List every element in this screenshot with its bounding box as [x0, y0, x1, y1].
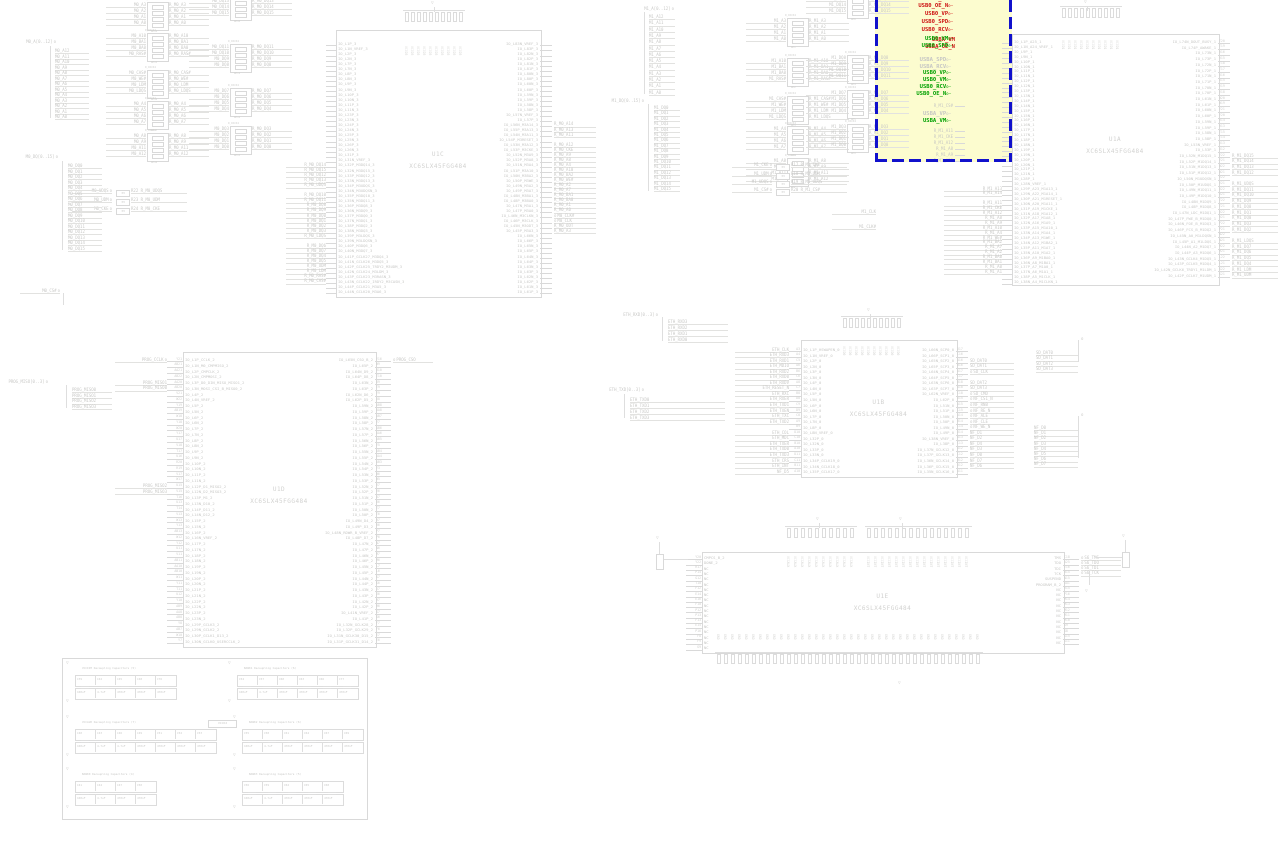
pin-stub: [326, 111, 336, 112]
pin-number: M6: [376, 559, 391, 563]
pack-net-left[interactable]: M0_LDQS: [106, 89, 146, 94]
pin-name: IO_L21N_2: [185, 594, 206, 598]
power-pin: [955, 654, 959, 664]
power-rail: [1060, 6, 1122, 7]
wire: [63, 293, 64, 305]
power-pin: [965, 528, 969, 538]
pin-number: R20: [167, 461, 182, 465]
fan-net-label[interactable]: M1_A4: [649, 65, 675, 70]
pin-stub: [540, 263, 552, 264]
resistor-icon: [152, 104, 164, 109]
net-label[interactable]: SD_CLK: [970, 370, 1014, 375]
cap-group-tag: VCCO2: [208, 720, 237, 728]
pack-net-left[interactable]: M0_DQ0: [189, 145, 229, 150]
cap-cell-sep: [277, 688, 278, 698]
pack-net-left[interactable]: M1_DQ11: [806, 74, 846, 79]
pin-name: IO_L42P_2: [278, 605, 373, 609]
resistor-icon: [152, 136, 164, 141]
pack-net-left[interactable]: M0_DQ15: [189, 11, 229, 16]
pack-net-left[interactable]: M0_A0: [106, 21, 146, 26]
pin-name: IO_L74P_AWAKE_1: [1121, 46, 1216, 50]
pin-number: R19: [167, 467, 182, 471]
resistor-icon: [152, 36, 164, 41]
cap-cell-sep: [95, 675, 96, 685]
cap-plate: [268, 742, 276, 743]
net-label[interactable]: R_M1_DQ2: [1232, 228, 1278, 233]
net-label[interactable]: M0_CS#: [20, 289, 60, 294]
fan-net-label[interactable]: M1_A1: [649, 84, 675, 89]
pin-name: IO_L35N_GCLK16_0: [859, 470, 954, 474]
power-pin-label: GND: [793, 634, 796, 640]
pin-stub: [326, 56, 336, 57]
power-pin-label: VCCINT: [929, 556, 932, 567]
pin-name: IO_L50N_2: [278, 508, 373, 512]
fan-net-label[interactable]: NF_D7: [1034, 462, 1078, 467]
pin-name: IO_L53P_2: [278, 479, 373, 483]
pin-name: IO_L20N_2: [185, 582, 206, 586]
pin-name: IO_L53N_2: [278, 473, 373, 477]
sel-net-label-green[interactable]: USB0_VM: [891, 77, 951, 83]
pin-name: NC: [966, 636, 1061, 640]
pin-name: IO_L65N_SCP2_0: [859, 359, 954, 363]
fan-net-label[interactable]: M1_A8: [649, 40, 675, 45]
pin-name: IO_L23N_2: [185, 617, 206, 621]
series-res-net-left[interactable]: M1_CS#: [732, 188, 772, 193]
cap-value: 470nF: [197, 744, 205, 748]
power-pin-label: VCCINT: [866, 556, 869, 567]
pin-number: Y16: [376, 358, 391, 362]
power-pin-label: VCCINT: [887, 556, 890, 567]
pull-resistor[interactable]: [656, 554, 664, 570]
pin-number: Y13: [167, 524, 182, 528]
vcc-symbol: ▽: [233, 767, 236, 772]
pin-number: W22: [167, 398, 182, 402]
net-label[interactable]: PROG_CSO: [393, 358, 433, 363]
power-pin-label: GND: [828, 634, 831, 640]
pin-number: C14: [957, 425, 968, 429]
pack-net-left[interactable]: M1_A0: [746, 37, 786, 42]
net-label[interactable]: R_M1_DQ12: [1232, 171, 1278, 176]
pin-number: T9: [376, 386, 391, 390]
power-pin: [405, 12, 409, 22]
pack-net-left[interactable]: M0_A12: [106, 152, 146, 157]
series-resistor-r24[interactable]: 33: [116, 208, 130, 215]
pin-name: IO_L50P_2: [278, 513, 373, 517]
power-pin: [871, 654, 875, 664]
power-pin-label: VCCO0: [842, 346, 845, 355]
sel-net-label-green[interactable]: USB0_SPD: [893, 43, 953, 49]
pin-stub: [1002, 195, 1012, 196]
pin-name: IO_L19N_2: [185, 571, 206, 575]
pin-stub: [1002, 274, 1012, 275]
pin-stub: [789, 474, 801, 475]
cap-group-title: BANK0 Decoupling Capacitors (4): [82, 772, 134, 776]
pin-number: B12: [957, 459, 968, 463]
pack-net-left[interactable]: M0_A7: [106, 120, 146, 125]
wire: [659, 544, 660, 554]
bus-label[interactable]: ETH_RXD[0..3]: [612, 313, 658, 317]
pin-number: A15: [957, 403, 968, 407]
pin-name: IO_L4P_0: [803, 381, 821, 385]
fan-net-label[interactable]: PROG_MISO3: [72, 405, 112, 410]
bus-line: [50, 46, 51, 118]
pack-net-right[interactable]: R_M0_DQ0: [252, 145, 292, 150]
resistor-icon: [792, 73, 804, 78]
net-label[interactable]: PROG_MISO0: [115, 386, 167, 391]
pin-number: A16: [957, 359, 968, 363]
pin-name: IO_L3P_0: [803, 370, 821, 374]
pin-number: W19: [1219, 102, 1230, 106]
pin-number: M22: [1219, 245, 1230, 249]
pin-stub: [326, 263, 336, 264]
cap-plate: [243, 688, 251, 689]
pack-net-left[interactable]: M0_DQ8: [189, 63, 229, 68]
net-label[interactable]: R_M0_A3: [554, 229, 596, 234]
resistor-pack-ref: RP13: [234, 154, 240, 157]
fan-net-label[interactable]: M0_DQ15: [68, 247, 102, 252]
net-label[interactable]: M1_CLK#: [832, 225, 876, 230]
cap-plate: [121, 794, 129, 795]
cap-cell-sep: [322, 794, 323, 804]
series-resistor-r23[interactable]: 33: [116, 199, 130, 206]
cap-refdes: C65: [304, 783, 309, 787]
pin-number: U16: [167, 455, 182, 459]
pin-stub: [326, 288, 336, 289]
power-pin: [724, 654, 728, 664]
cap-refdes: C54: [239, 677, 244, 681]
pack-net-left[interactable]: M1_LDQS: [746, 115, 786, 120]
fan-net-label[interactable]: M1_A0: [649, 91, 675, 96]
cap-plate: [248, 794, 256, 795]
net-label[interactable]: R_M1_UDM: [1232, 273, 1278, 278]
pin-name: IO_L45N_A0_M1LDQSN_1: [1121, 234, 1216, 238]
bus-label[interactable]: M0_A[0..12]: [10, 40, 56, 44]
power-pin: [855, 318, 859, 328]
pin-name: IO_L58P_2: [278, 421, 373, 425]
fan-net-label[interactable]: ETH_TXD3: [630, 416, 725, 421]
pin-name: IO_L47N_2: [278, 542, 373, 546]
vcc-stem: [1087, 6, 1088, 11]
pin-number: M14: [1064, 598, 1079, 602]
pull-resistor[interactable]: [1122, 552, 1130, 568]
power-pin: [1104, 8, 1108, 18]
pack-net-left[interactable]: M1_DQ4: [806, 109, 846, 114]
cap-cell-sep: [262, 794, 263, 804]
pin-name: IO_L64P_SCP5_0: [859, 376, 954, 380]
pack-net-left[interactable]: M1_DQ0: [806, 143, 846, 148]
pin-name: IO_L64N_SCP4_0: [859, 370, 954, 374]
pin-stub: [326, 273, 336, 274]
power-pin-label: VCCAUX: [835, 556, 838, 567]
series-res-net-right[interactable]: R17 R_M1_CKE: [791, 163, 847, 168]
pin-stub: [540, 278, 552, 279]
pin-stub: [326, 248, 336, 249]
pin-name: IO_L32N_GCLK28_2: [278, 623, 373, 627]
pack-net-left[interactable]: M1_RAS#: [746, 77, 786, 82]
power-pin-label: GND: [877, 634, 880, 640]
pin-name: IO_L49P_0: [859, 431, 954, 435]
resistor-pack-type: R_PACK4: [785, 14, 796, 17]
pack-net-left[interactable]: M1_DQ15: [806, 9, 846, 14]
pack-net-right[interactable]: R_M0_DQ4: [252, 107, 292, 112]
series-res-net-left[interactable]: M1_UDM: [732, 172, 772, 177]
sel-net-label-green[interactable]: USB0_RCV: [891, 84, 951, 90]
series-res-net-left[interactable]: M1_UDQS: [732, 180, 772, 185]
pin-name: IO_L5N_0: [803, 398, 821, 402]
pin-name: IO_L59N_1: [1121, 120, 1216, 124]
pin-number: U22: [1219, 188, 1230, 192]
cap-value: 100uF: [77, 744, 85, 748]
vcc-stem: [870, 314, 871, 319]
power-pin-label: VCCO1: [1091, 40, 1094, 49]
pin-number: C8: [789, 414, 800, 418]
net-label[interactable]: R_M0_LDQS: [286, 234, 326, 239]
sel-net-label-small[interactable]: R_M1_A9: [905, 152, 953, 157]
net-label[interactable]: PROG_CCLK: [115, 358, 167, 363]
resistor-icon: [152, 116, 164, 121]
pin-name: TMS: [966, 556, 1061, 560]
pin-name: NC: [966, 609, 1061, 613]
fan-net-label[interactable]: SD_DAT3: [1036, 367, 1078, 372]
net-label[interactable]: R_M1_A1: [944, 270, 1002, 275]
selection-border-bottom: [875, 159, 1012, 162]
cap-cell-sep: [317, 675, 318, 685]
pin-number: C11: [789, 459, 800, 463]
power-pin: [913, 654, 917, 664]
sel-net-label-gray[interactable]: USBA_SPD: [891, 57, 951, 63]
sel-net-label-small[interactable]: R_M1_CKE: [905, 134, 953, 139]
pin-number: E16: [686, 598, 701, 602]
sel-net-label-red[interactable]: USB0_SPD: [893, 19, 953, 25]
series-res-net-right[interactable]: R18 R_M1_UDM: [791, 172, 847, 177]
series-resistor-r17[interactable]: 33: [776, 164, 790, 171]
net-label[interactable]: R_M0_A11: [554, 133, 596, 138]
resistor-pack-type: R_PACK4: [228, 84, 239, 87]
fan-net-label[interactable]: M1_DQ15: [654, 187, 680, 192]
pack-net-right[interactable]: R_M0_A0: [169, 21, 209, 26]
net-label[interactable]: NF_D6: [970, 464, 1014, 469]
pin-number: W17: [167, 478, 182, 482]
power-pin-label: VCCO1: [1103, 40, 1106, 49]
pin-name: IO_L42N_2: [278, 600, 373, 604]
sel-net-label-green[interactable]: USB0_VP: [891, 70, 951, 76]
pack-net-right[interactable]: R_M0_DQ8: [252, 63, 292, 68]
power-pin-label: GND: [975, 634, 978, 640]
pin-number: D8: [789, 397, 800, 401]
cap-refdes: C52: [177, 731, 182, 735]
series-res-net-right[interactable]: R20 R_M1_CS#: [791, 188, 847, 193]
sel-net-label-small[interactable]: R_M1_CS#: [905, 103, 953, 108]
pin-number: Y5: [376, 444, 391, 448]
net-label[interactable]: R_M0_UDQS: [286, 183, 326, 188]
cap-value: 4.7uF: [264, 744, 272, 748]
pin-name: IO_L22N_2: [185, 605, 206, 609]
pack-net-right[interactable]: R_M0_DQ15: [252, 11, 292, 16]
pack-net-right[interactable]: R_M1_A0: [809, 37, 849, 42]
power-pin-label: VCCO3: [440, 46, 443, 55]
pack-net-right[interactable]: R_M1_LDQS: [809, 115, 849, 120]
pack-net-right[interactable]: R_M0_A12: [169, 152, 209, 157]
pack-net-left[interactable]: M0_RAS#: [106, 52, 146, 57]
pin-number: T7: [376, 507, 391, 511]
pin-name: NC: [966, 593, 1061, 597]
sel-net-label-small[interactable]: R_M1_A11: [905, 128, 953, 133]
cap-plate: [101, 794, 109, 795]
series-res-net-right[interactable]: R22 R_M0_UDQS: [131, 189, 187, 194]
series-resistor-r20[interactable]: 33: [776, 189, 790, 196]
cap-cell-sep: [282, 794, 283, 804]
pin-name: IO_L61P_3: [443, 290, 538, 294]
net-label[interactable]: PROG_MISO3: [115, 490, 167, 495]
pin-name: IO_L70P_1: [1121, 91, 1216, 95]
pack-net-left[interactable]: M1_A7: [746, 145, 786, 150]
bus-label[interactable]: M1_DQ[0..15]: [598, 99, 644, 103]
pin-stub: [540, 71, 552, 72]
power-pin-label: GND: [898, 634, 901, 640]
series-res-net-right[interactable]: R19 R_M1_UDQS: [791, 180, 847, 185]
pin-name: IO_L46N_FOE_B_M1DQ3_1: [1121, 222, 1216, 226]
sel-net-label-red[interactable]: USB0_VP: [893, 11, 953, 17]
cap-refdes: C47: [117, 783, 122, 787]
pin-name: IO_L37N_GCLK12_0: [859, 448, 954, 452]
sel-net-label-red[interactable]: USB0_RCV: [893, 27, 953, 33]
cap-cell-sep: [95, 794, 96, 804]
net-label[interactable]: ETH_TXD2: [735, 420, 789, 425]
pin-stub: [326, 243, 336, 244]
net-label[interactable]: NF_D5: [735, 470, 789, 475]
power-pin: [906, 654, 910, 664]
pin-name: IO_L8N_2: [185, 444, 203, 448]
pin-name: IO_L10N_2: [185, 467, 206, 471]
net-label[interactable]: R_M0_CAS#: [286, 279, 326, 284]
bus-label[interactable]: M1_A[0..12]: [628, 7, 674, 11]
bus-label[interactable]: M0_DQ[0..15]: [12, 155, 58, 159]
power-pin-label: GND: [905, 634, 908, 640]
series-resistor-r22[interactable]: 33: [116, 190, 130, 197]
pin-number: W12: [167, 536, 182, 540]
cap-plate: [328, 794, 336, 795]
cap-refdes: C66: [319, 677, 324, 681]
pin-name: IO_L5P_2: [185, 404, 203, 408]
series-resistor-r18[interactable]: 33: [776, 173, 790, 180]
sel-net-label-small[interactable]: R_M1_A12: [905, 140, 953, 145]
pin-stub: [1002, 264, 1012, 265]
resistor-pack-type: R_PACK4: [228, 40, 239, 43]
bus-line: [1078, 416, 1079, 458]
cap-value: 470nF: [284, 796, 292, 800]
pin-name: IO_L31P_GCLK31_D14_2: [278, 640, 373, 644]
cap-plate: [161, 688, 169, 689]
power-pin-label: GND: [786, 634, 789, 640]
pin-name: IO_L48N_M1DQ9_1: [1121, 200, 1216, 204]
pin-number: A8: [789, 381, 800, 385]
pin-name: NC: [704, 577, 709, 581]
power-pin: [861, 318, 865, 328]
power-pin-label: GND: [835, 634, 838, 640]
sel-net-label-green[interactable]: USB0_OE_N: [891, 91, 951, 97]
power-pin: [873, 318, 877, 328]
series-res-net-right[interactable]: R24 R_M0_CKE: [131, 207, 187, 212]
cap-refdes: C43: [97, 731, 102, 735]
bus-label[interactable]: PROG_MISO[0..3]: [2, 380, 48, 384]
wire: [662, 559, 688, 560]
power-pin: [920, 654, 924, 664]
pin-number: M10: [1064, 619, 1079, 623]
cap-value: 4.7uF: [97, 690, 105, 694]
power-pin-label: VCCINT: [964, 556, 967, 567]
sel-net-label-red[interactable]: USB0_VM: [893, 0, 953, 2]
pack-net-left[interactable]: M0_DQ4: [189, 107, 229, 112]
bus-label[interactable]: ETH_TXD[0..3]: [598, 388, 644, 392]
pin-stub: [1002, 205, 1012, 206]
gnd-symbol: ▽: [66, 805, 69, 810]
pin-stub: [1002, 190, 1012, 191]
fan-net-label[interactable]: M1_A11: [649, 21, 675, 26]
pin-name: IO_L46N_2: [278, 554, 373, 558]
pin-number: AA10: [167, 565, 182, 569]
pin-stub: [326, 157, 336, 158]
power-pin-label: VCCO3: [452, 46, 455, 55]
pin-number: N22: [1219, 233, 1230, 237]
pin-stub: [540, 121, 552, 122]
selection-border-right: [1009, 0, 1012, 162]
pin-stub: [326, 217, 336, 218]
sel-net-label-green[interactable]: USB0_VM: [893, 36, 953, 42]
pin-number: R15: [1064, 587, 1079, 591]
fan-net-label[interactable]: M0_A0: [55, 115, 89, 120]
sel-net-label-small[interactable]: R_M1_A8: [905, 146, 953, 151]
pin-number: E16: [1064, 566, 1079, 570]
pin-number: R17: [686, 566, 701, 570]
cap-plate: [141, 794, 149, 795]
pin-number: Y22: [686, 561, 701, 565]
pin-number: B10: [789, 442, 800, 446]
cap-refdes: C45: [117, 677, 122, 681]
series-res-net-right[interactable]: R23 R_M0_UDM: [131, 198, 187, 203]
power-pin-label: VCCO3: [404, 46, 407, 55]
sel-net-label-gray[interactable]: USBA_VP: [891, 111, 951, 117]
pin-number: G9: [1064, 624, 1079, 628]
power-pin: [944, 528, 948, 538]
resistor-icon: [792, 39, 804, 44]
series-res-net-left[interactable]: M1_CKE: [732, 163, 772, 168]
pin-number: Y22: [1219, 154, 1230, 158]
resistor-icon: [852, 145, 864, 150]
pin-name: IO_L47P_FWE_B_M1DQ0_1: [1121, 217, 1216, 221]
pin-name: IO_L38N_A4_M1CLKN_1: [1014, 280, 1057, 284]
pin-number: W20: [1219, 97, 1230, 101]
net-label[interactable]: M1_CLK: [832, 210, 876, 215]
fan-net-label[interactable]: ETH_RXD0: [668, 338, 728, 343]
power-pin: [808, 528, 812, 538]
pin-name: IO_L65P_SCP3_0: [859, 365, 954, 369]
power-pin-label: GND: [912, 634, 915, 640]
pin-stub: [955, 155, 965, 156]
pin-number: G8: [1064, 630, 1079, 634]
cap-refdes: C58: [264, 731, 269, 735]
power-pin-label: GND: [814, 634, 817, 640]
pin-name: IO_L23P_2: [185, 611, 206, 615]
vcc-symbol: ▽: [816, 517, 819, 522]
cap-cell-sep: [95, 781, 96, 791]
net-label[interactable]: S6_TCK: [1081, 571, 1121, 576]
sel-net-label-red[interactable]: USB0_OE_N: [893, 3, 953, 9]
sel-net-label-green[interactable]: USBA_VM: [891, 118, 951, 124]
pin-name: IO_L7P_0: [803, 415, 821, 419]
pack-net-right[interactable]: R_M0_A7: [169, 120, 209, 125]
series-resistor-r19[interactable]: 33: [776, 181, 790, 188]
net-label[interactable]: R_M1_A14: [944, 191, 1002, 196]
